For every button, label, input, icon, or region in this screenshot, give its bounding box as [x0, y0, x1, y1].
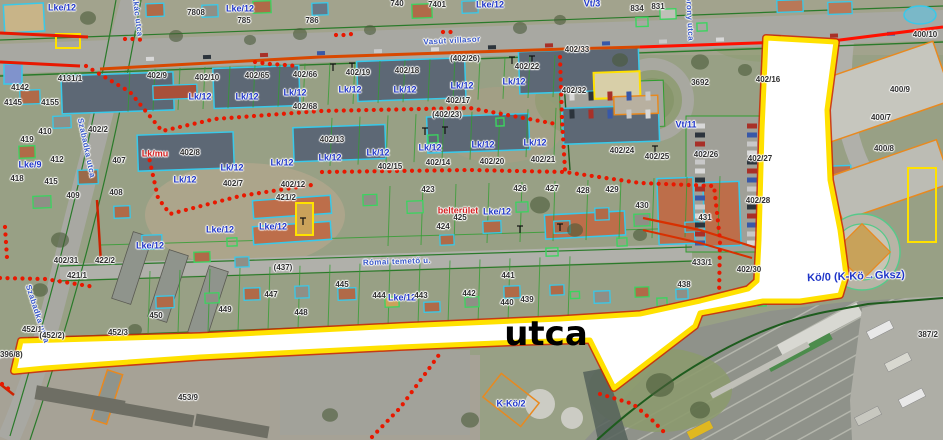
map-decor — [747, 196, 757, 201]
map-decor — [695, 205, 705, 210]
map-decor — [747, 169, 757, 174]
map-decor — [695, 214, 705, 219]
map-canvas[interactable]: utca Vasút villasorAkác utcaSzabadka utc… — [0, 0, 943, 440]
map-decor — [530, 197, 550, 214]
map-decor — [828, 2, 852, 15]
map-decor — [550, 285, 564, 295]
map-decor — [747, 142, 757, 147]
map-decor — [747, 133, 757, 138]
map-decor — [695, 223, 705, 228]
map-decor — [645, 109, 650, 118]
map-decor — [504, 286, 520, 299]
map-decor — [747, 124, 757, 129]
map-decor — [203, 55, 211, 59]
map-image — [0, 0, 943, 440]
map-decor — [747, 160, 757, 165]
map-decor — [554, 15, 566, 25]
map-decor — [431, 47, 439, 51]
map-decor — [612, 53, 628, 67]
map-decor — [695, 178, 705, 183]
map-decor — [691, 54, 709, 69]
map-decor — [738, 64, 752, 76]
map-decor — [646, 373, 674, 397]
map-decor — [153, 84, 197, 100]
map-decor — [78, 170, 98, 185]
map-decor — [293, 28, 307, 40]
map-decor — [295, 286, 309, 298]
map-decor — [19, 146, 35, 159]
map-decor — [169, 30, 183, 42]
map-decor — [235, 257, 249, 267]
map-decor — [569, 91, 574, 100]
map-decor — [626, 91, 631, 100]
map-decor — [462, 1, 478, 14]
map-decor — [20, 90, 40, 105]
map-decor — [545, 43, 553, 47]
map-decor — [461, 412, 479, 427]
map-decor — [602, 41, 610, 45]
map-decor — [716, 37, 724, 41]
map-decor — [412, 4, 432, 19]
map-decor — [53, 116, 71, 129]
map-decor — [830, 34, 838, 38]
map-decor — [569, 109, 574, 118]
map-decor — [660, 9, 676, 20]
map-decor — [747, 187, 757, 192]
map-decor — [483, 221, 501, 234]
map-decor — [156, 296, 174, 309]
map-decor — [645, 91, 650, 100]
map-decor — [747, 178, 757, 183]
map-decor — [317, 51, 325, 55]
map-decor — [626, 109, 631, 118]
map-decor — [588, 109, 593, 118]
map-decor — [51, 232, 69, 247]
map-decor — [695, 142, 705, 147]
map-decor — [747, 214, 757, 219]
map-decor — [747, 205, 757, 210]
map-decor — [146, 57, 154, 61]
map-decor — [465, 297, 479, 307]
map-decor — [659, 39, 667, 43]
map-decor — [114, 206, 130, 219]
map-decor — [567, 223, 583, 237]
map-decor — [440, 235, 454, 245]
map-decor — [364, 25, 376, 35]
map-decor — [607, 91, 612, 100]
map-decor — [363, 194, 377, 205]
map-decor — [142, 235, 162, 250]
map-decor — [747, 151, 757, 156]
map-decor — [244, 288, 260, 301]
map-decor — [322, 408, 338, 422]
map-decor — [513, 22, 527, 34]
map-decor — [690, 402, 710, 419]
map-decor — [695, 196, 705, 201]
map-decor — [695, 151, 705, 156]
map-decor — [33, 196, 51, 209]
map-decor — [374, 49, 382, 53]
map-decor — [385, 297, 399, 307]
map-decor — [607, 109, 612, 118]
map-decor — [407, 201, 423, 214]
map-decor — [588, 91, 593, 100]
map-decor — [146, 3, 164, 17]
map-decor — [635, 287, 649, 297]
map-decor — [695, 124, 705, 129]
map-decor — [253, 1, 271, 14]
map-decor — [260, 53, 268, 57]
map-decor — [205, 293, 219, 303]
map-decor — [695, 160, 705, 165]
map-decor — [777, 0, 803, 12]
map-decor — [312, 3, 328, 16]
map-decor — [695, 169, 705, 174]
map-decor — [194, 252, 210, 263]
map-decor — [676, 289, 688, 299]
map-decor — [695, 133, 705, 138]
map-decor — [32, 283, 48, 297]
map-decor — [202, 5, 218, 18]
map-decor — [80, 11, 96, 25]
map-decor — [595, 208, 609, 220]
map-decor — [338, 288, 356, 301]
map-decor — [244, 35, 256, 45]
map-decor — [594, 291, 610, 304]
map-decor — [516, 202, 528, 212]
map-decor — [488, 45, 496, 49]
map-decor — [424, 302, 440, 313]
